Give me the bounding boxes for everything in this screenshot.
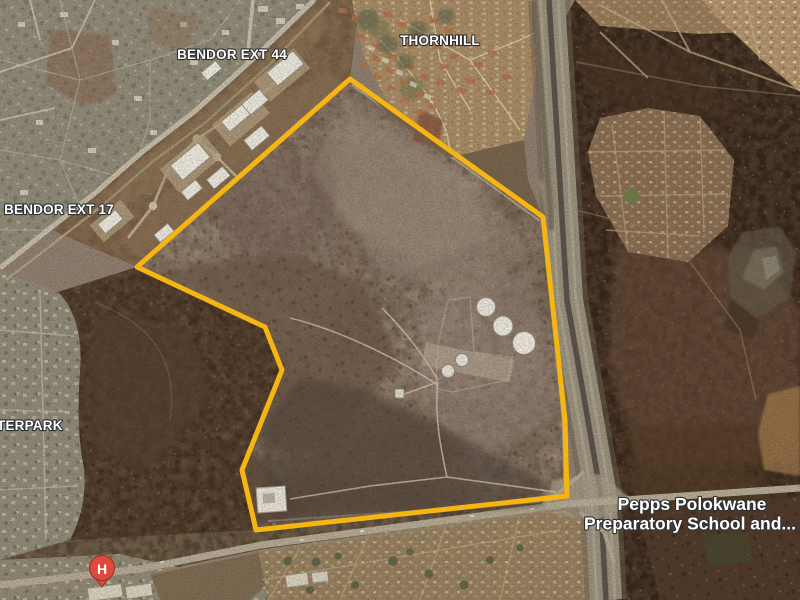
svg-text:Pepps Polokwane: Pepps Polokwane xyxy=(618,494,767,514)
svg-text:TERPARK: TERPARK xyxy=(0,418,63,433)
svg-text:Preparatory School and...: Preparatory School and... xyxy=(584,514,796,534)
svg-text:THORNHILL: THORNHILL xyxy=(400,33,480,48)
svg-text:H: H xyxy=(97,561,107,577)
svg-text:BENDOR EXT 17: BENDOR EXT 17 xyxy=(4,202,114,217)
svg-text:BENDOR EXT 44: BENDOR EXT 44 xyxy=(177,47,287,62)
